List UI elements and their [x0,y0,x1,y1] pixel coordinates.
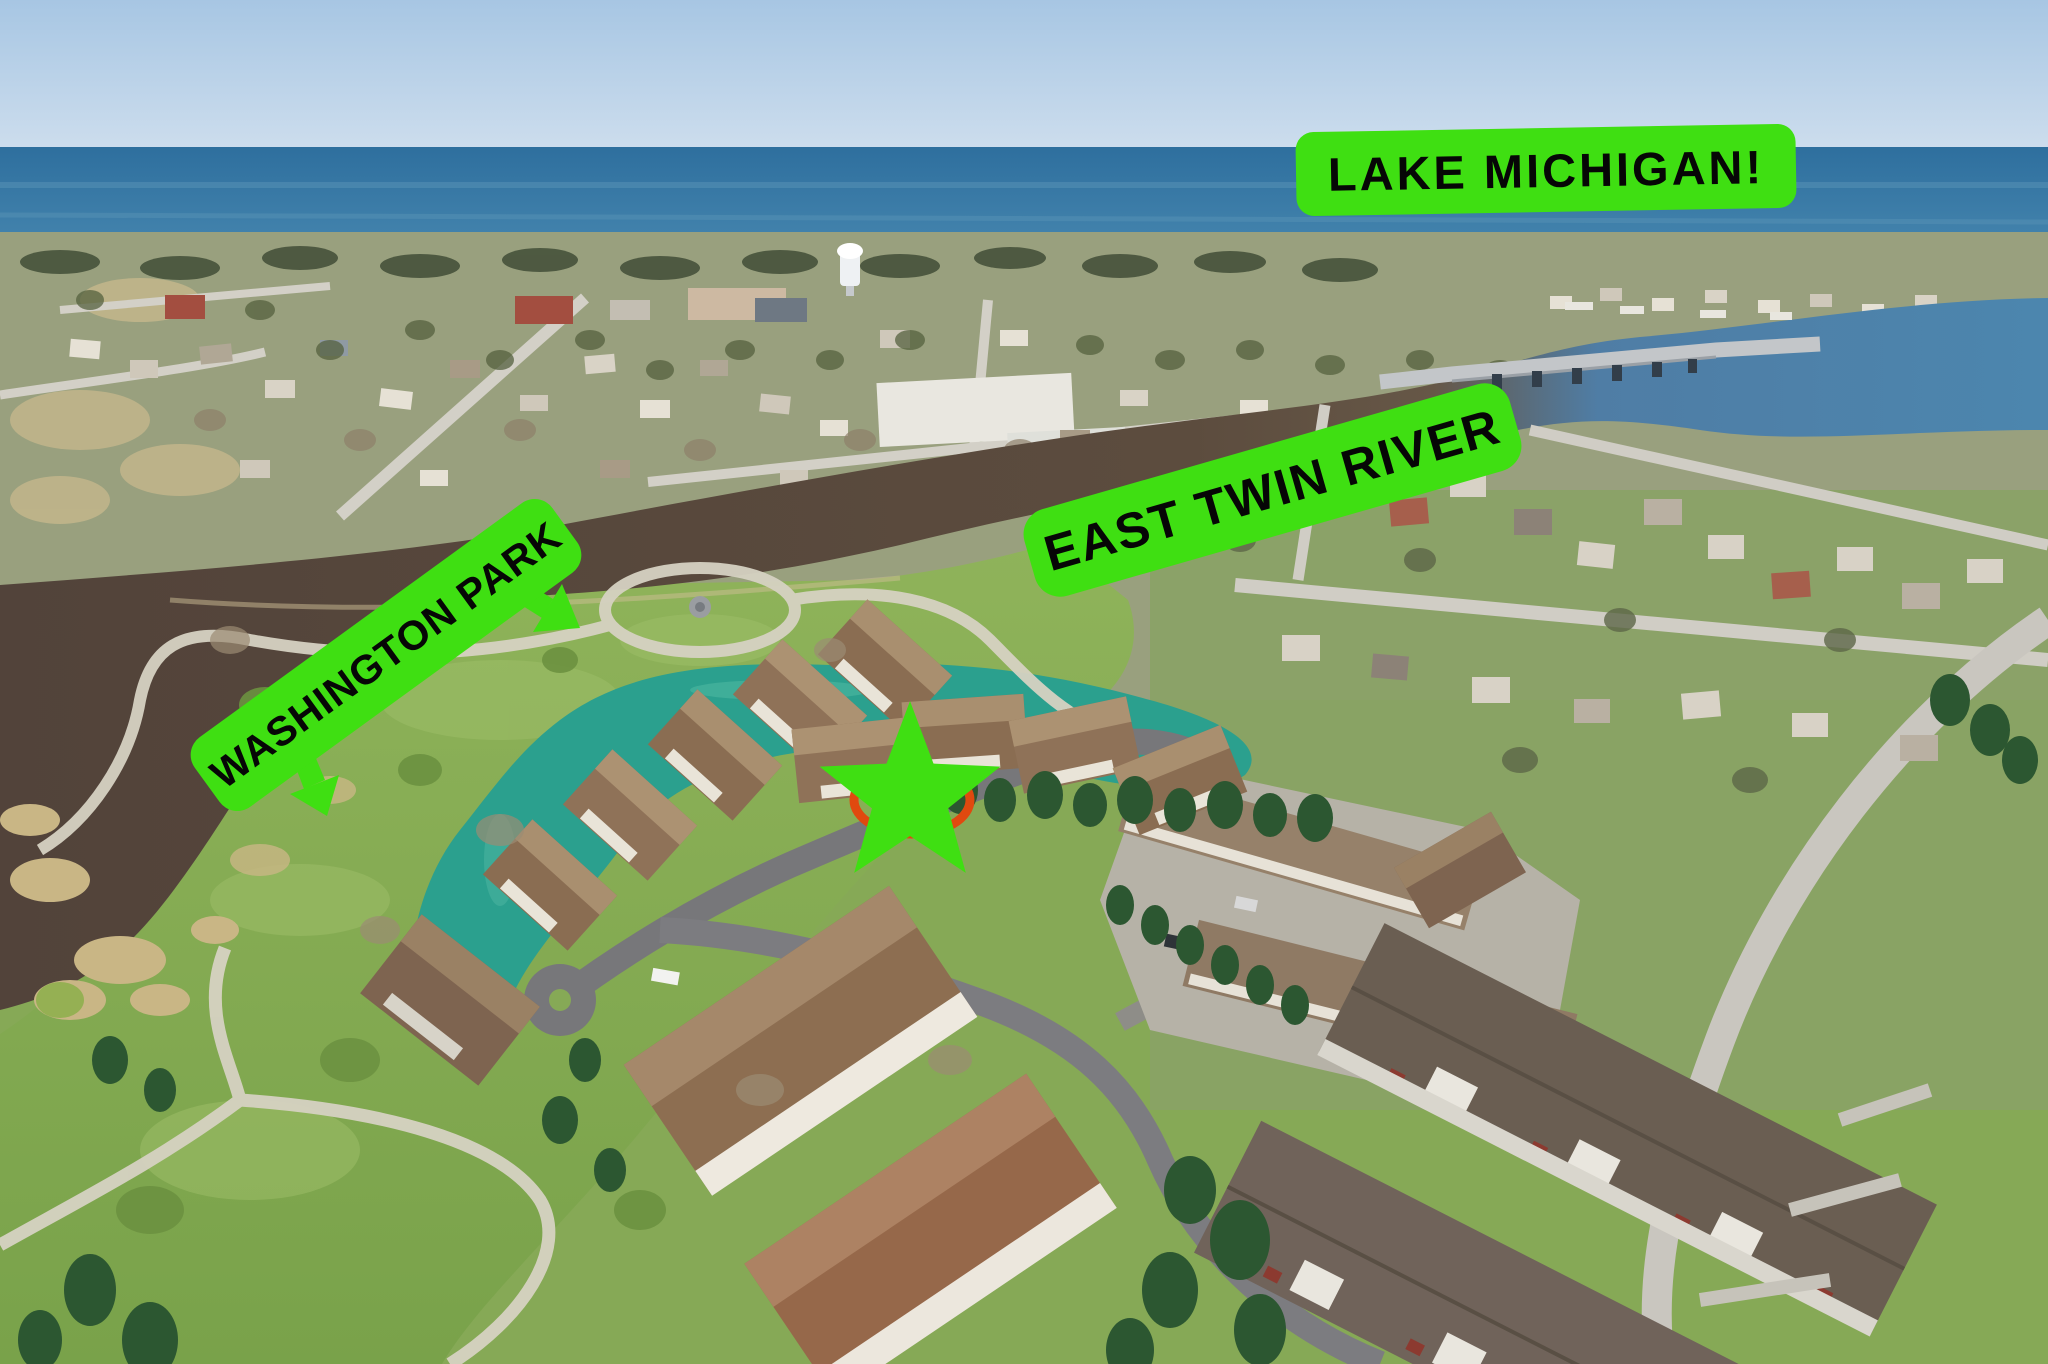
lake-michigan-label: LAKE MICHIGAN! [1295,124,1796,217]
park-gazebo-roof [695,602,705,612]
aerial-photo: LAKE MICHIGAN! EAST TWIN RIVER WASHINGTO… [0,0,2048,1364]
cul-de-sac-island [549,989,571,1011]
lake-michigan-label-text: LAKE MICHIGAN! [1327,143,1764,198]
